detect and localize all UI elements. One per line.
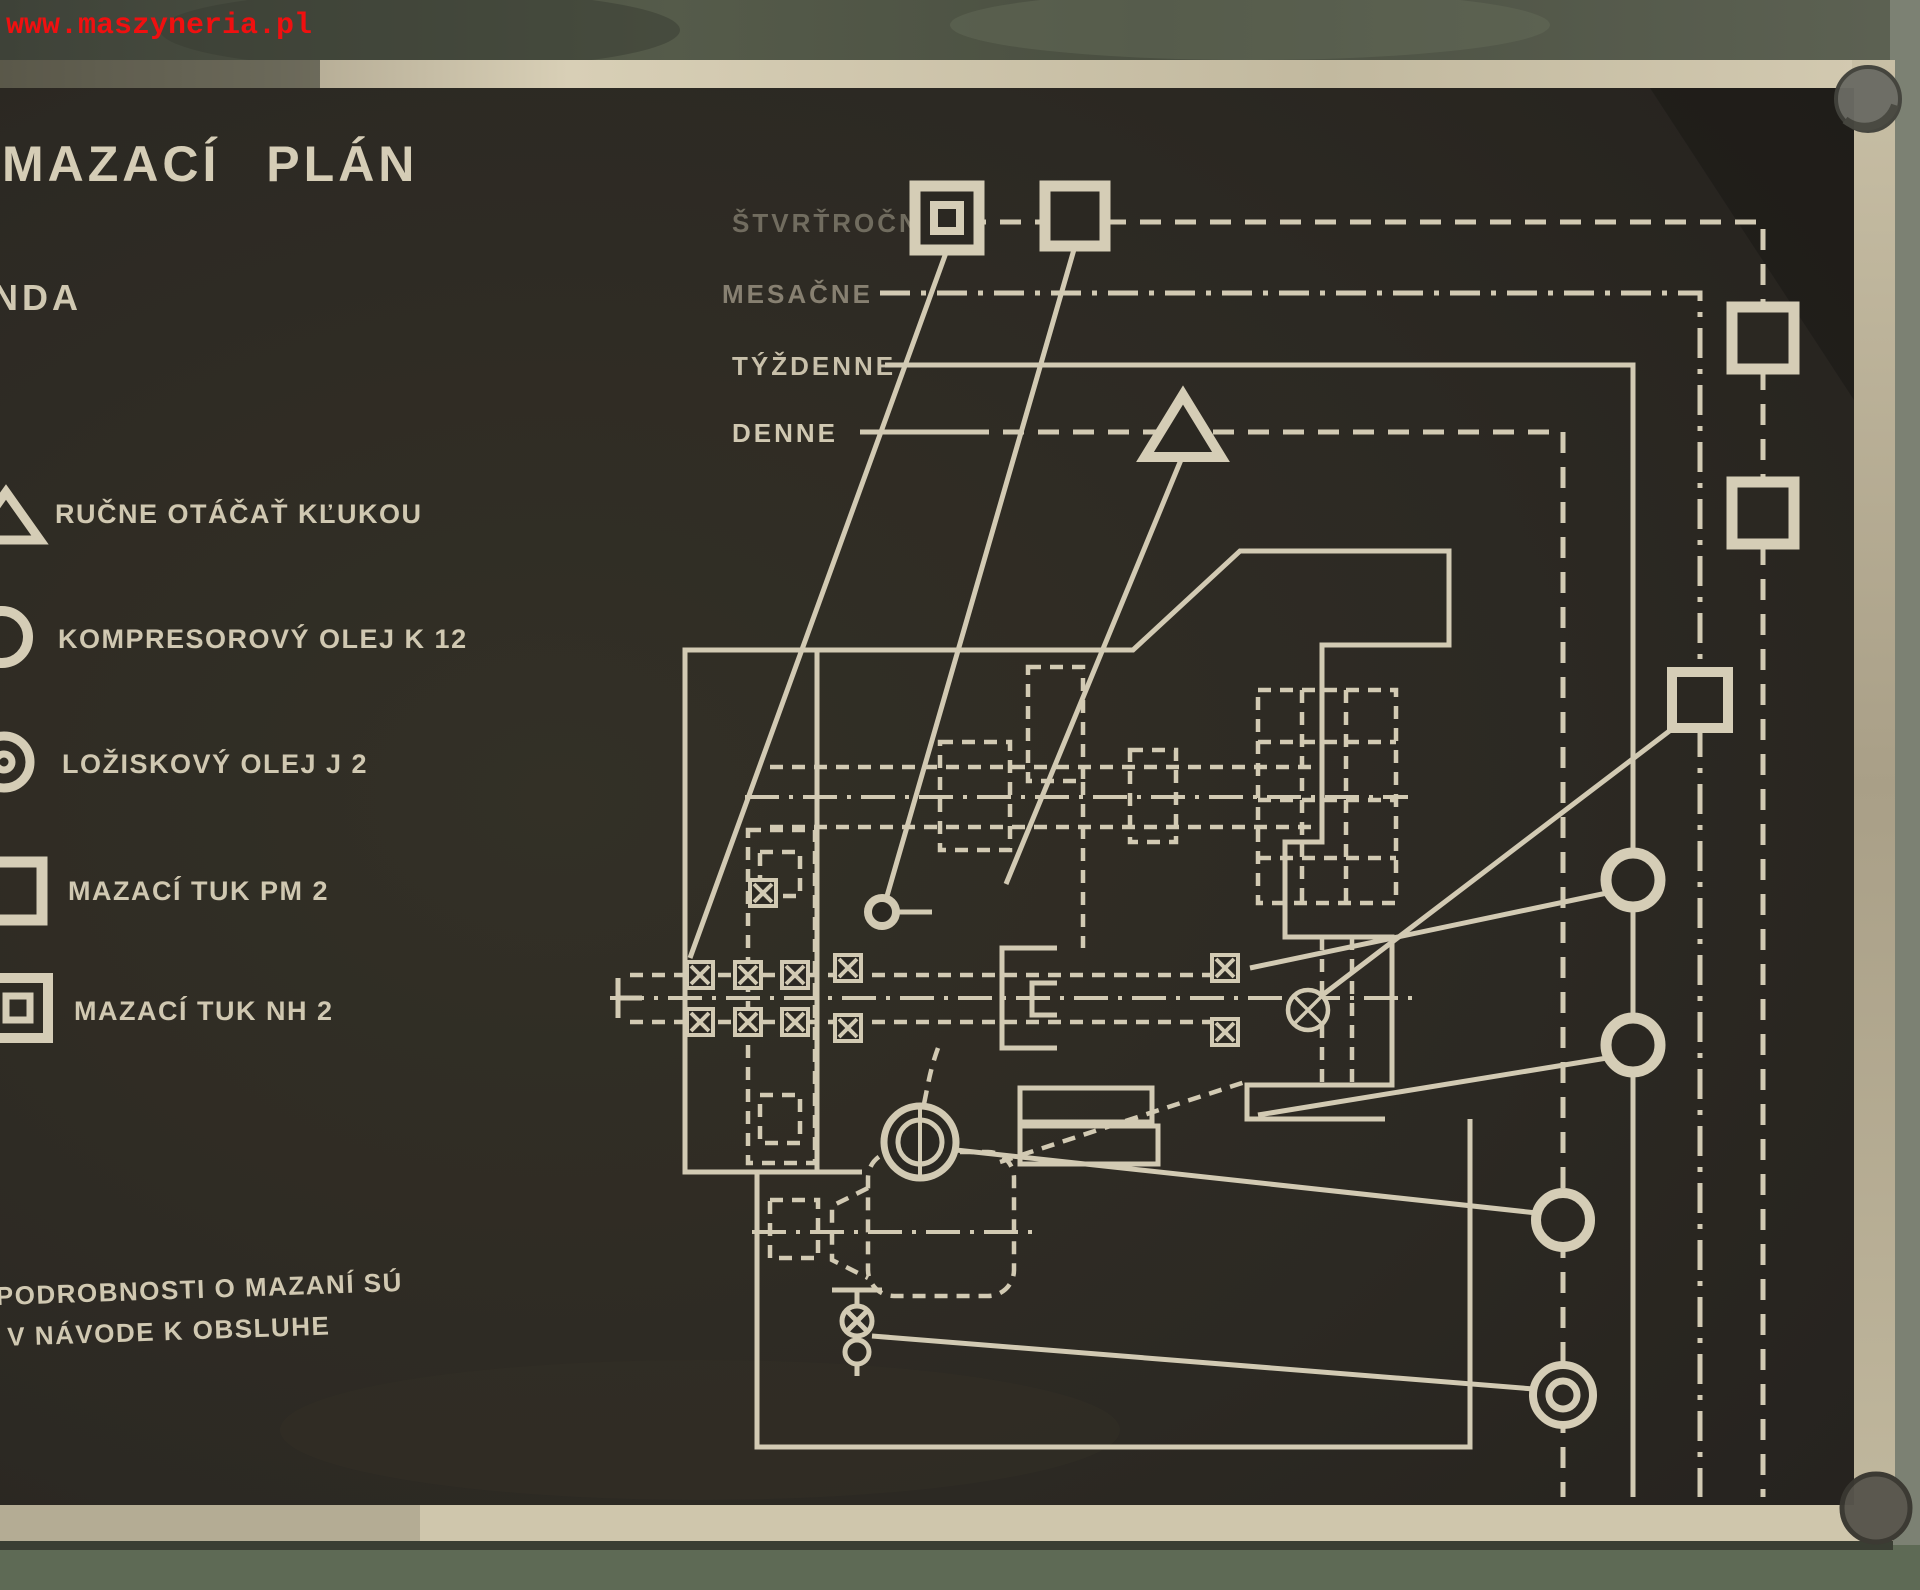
lighting-overlay <box>0 88 1854 1505</box>
frame-grime <box>0 1503 420 1543</box>
frame-shadow <box>0 1541 1893 1550</box>
lubrication-plan-scene: MAZACÍ PLÁN NDA RUČNE OTÁČAŤ KĽUKOU KOMP… <box>0 0 1920 1590</box>
watermark-text: www.maszyneria.pl <box>6 9 312 43</box>
plate-frame-right <box>1852 60 1895 1510</box>
photo-of-lubrication-plate: MAZACÍ PLÁN NDA RUČNE OTÁČAŤ KĽUKOU KOMP… <box>0 0 1920 1590</box>
frame-grime <box>0 60 320 90</box>
machine-surface-bottom <box>0 1545 1920 1590</box>
